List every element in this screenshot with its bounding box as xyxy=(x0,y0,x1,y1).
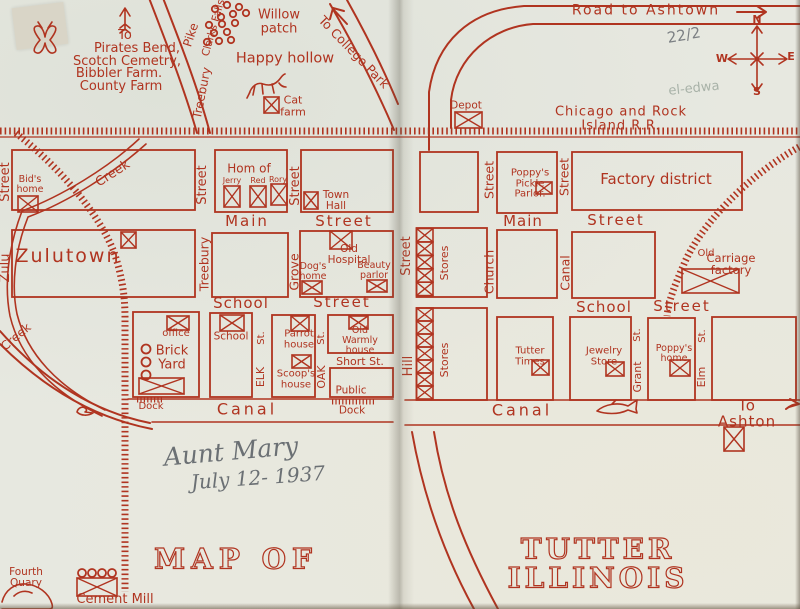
dogs-home: Dog's home xyxy=(300,262,327,282)
cement-mill: Cement Mill xyxy=(76,593,153,607)
tutter-map-page: ToPirates Bend,Scotch Cemetry,Bibbler Fa… xyxy=(0,0,800,609)
beauty-parlor: Beauty parlor xyxy=(357,261,391,281)
grant-st-grant: Grant xyxy=(632,361,644,392)
hom-of: Hom of xyxy=(227,163,270,176)
jewelry-store: Jewelry Store xyxy=(586,347,622,368)
county-farm: County Farm xyxy=(80,80,162,94)
brick-yard: Brick Yard xyxy=(156,344,189,371)
old-warmly-house: Old Warmly house xyxy=(342,326,378,356)
oak-st-st: St. xyxy=(317,331,328,344)
scoops-house: Scoop's house xyxy=(277,370,315,391)
poppys-pickle-parlor: Poppy's Pickle Parlor. xyxy=(511,168,549,200)
hill-street-hill: Hill xyxy=(402,356,416,377)
road-to-ashtown: Road to Ashtown xyxy=(572,4,720,19)
school-street-left-street: Street xyxy=(313,295,371,311)
willow-patch: Willow patch xyxy=(258,8,300,35)
depot: Depot xyxy=(450,100,482,111)
oak-st-oak: OAK xyxy=(316,365,328,388)
church-street-church: Church xyxy=(482,250,495,294)
compass-s: S xyxy=(753,86,761,98)
creek-lower: Creek xyxy=(0,321,33,353)
zulutown: Zulutown xyxy=(15,247,120,267)
public-dock-dock: Dock xyxy=(339,405,365,416)
main-street-right-street: Street xyxy=(587,213,645,229)
pencil-fraction: 22/2 xyxy=(666,25,702,46)
map-of-title: MAP OF xyxy=(154,544,318,573)
elk-st-elk: ELK xyxy=(255,367,267,387)
clarks-falls: Clarks Falls xyxy=(201,0,228,58)
office: office xyxy=(162,329,189,340)
creek-upper: Creek xyxy=(93,158,132,190)
factory-district: Factory district xyxy=(600,172,711,188)
town-hall: Town Hall xyxy=(323,190,349,212)
grove-street-street: Street xyxy=(289,166,303,206)
rory: Rory xyxy=(269,176,287,184)
compass-e: E xyxy=(787,51,795,63)
jerry: Jerry xyxy=(223,177,241,185)
fourth-quary: Fourth Quary xyxy=(9,567,43,589)
zulu-street-zulu: Zulu xyxy=(0,254,13,283)
tutter-illinois-title: TUTTER ILLINOIS xyxy=(497,535,699,594)
short-st: Short St. xyxy=(336,356,384,368)
happy-hollow: Happy hollow xyxy=(236,51,334,66)
school-house: School xyxy=(214,331,249,342)
elk-st-st: St. xyxy=(257,331,268,344)
treebury-pike-pike: Pike xyxy=(181,22,200,49)
old-carriage-factory: Carriage factory xyxy=(697,252,766,276)
main-street-left-main: Main xyxy=(225,214,269,230)
treebury-street-treebury: Treebury xyxy=(197,237,210,291)
parrot-house: Parrot house xyxy=(284,330,314,351)
elm-st-elm: Elm xyxy=(696,367,708,388)
tutter-times: Tutter Times xyxy=(515,347,545,368)
zulu-street-street: Street xyxy=(0,162,13,202)
red: Red xyxy=(250,177,265,185)
compass-n: N xyxy=(752,14,761,26)
cat-farm: Cat farm xyxy=(280,94,306,117)
railroad-name: Chicago and Rock Island R.R. xyxy=(532,105,711,132)
bids-home: Bid's home xyxy=(17,175,44,195)
stores-lower: Stores xyxy=(439,343,451,378)
school-street-right-school: School xyxy=(576,300,632,316)
canal-street-street: Street xyxy=(557,158,570,196)
dock-brickyard: Dock xyxy=(138,402,163,413)
canal-left: Canal xyxy=(217,402,277,419)
map-labels: ToPirates Bend,Scotch Cemetry,Bibbler Fa… xyxy=(0,0,800,609)
canal-street-canal: Canal xyxy=(558,255,571,290)
hill-street-street: Street xyxy=(400,236,414,276)
school-street-left-school: School xyxy=(213,296,269,312)
school-street-right-street: Street xyxy=(653,299,711,315)
poppys-home: Poppy's home xyxy=(656,344,692,364)
main-street-right-main: Main xyxy=(503,214,543,230)
main-street-left-street: Street xyxy=(315,214,373,230)
elm-st-st: St. xyxy=(698,329,709,342)
grant-st-st: St. xyxy=(633,328,644,341)
to-ashton: To Ashton xyxy=(718,398,776,430)
public-dock-public: Public xyxy=(335,385,366,396)
compass-w: W xyxy=(716,53,728,65)
canal-right: Canal xyxy=(492,403,552,420)
treebury-street-street: Street xyxy=(196,165,210,205)
church-street-street: Street xyxy=(482,161,495,199)
treebury-pike-treebury: Treebury xyxy=(191,66,213,120)
pencil-eledwa: el-edwa xyxy=(668,80,720,99)
stores-upper: Stores xyxy=(439,246,451,281)
